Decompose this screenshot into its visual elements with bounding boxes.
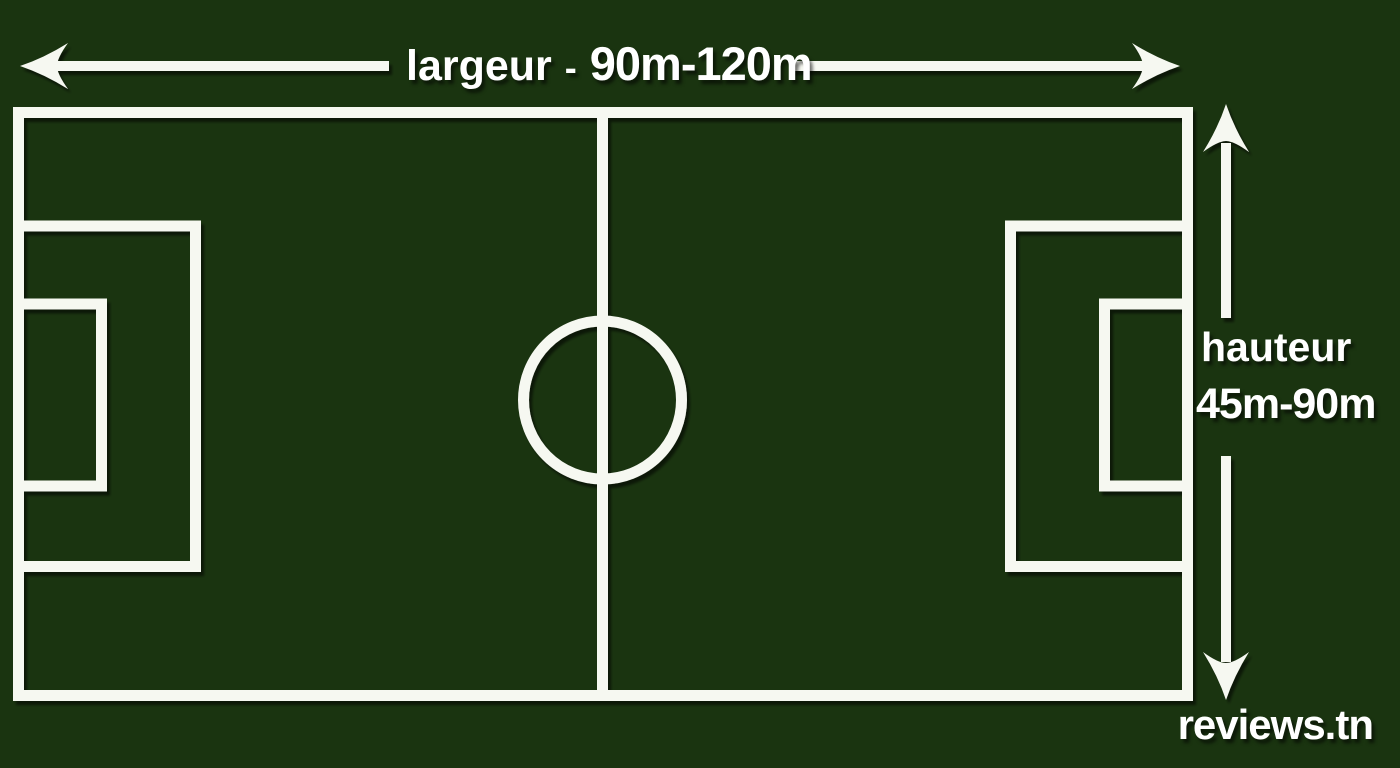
height-range-text: 45m-90m xyxy=(1196,383,1375,426)
watermark: reviews.tn xyxy=(1178,704,1373,746)
right-goal-area xyxy=(1105,304,1188,486)
width-label-text: largeur xyxy=(406,45,552,88)
diagram-canvas: largeur - 90m-120m hauteur 45m-90m revie… xyxy=(0,0,1400,768)
left-goal-area xyxy=(19,304,102,486)
width-dimension-label: largeur - 90m-120m xyxy=(406,40,812,88)
width-label-separator: - xyxy=(565,50,577,86)
height-dimension-label: hauteur 45m-90m xyxy=(1201,327,1375,426)
width-range-text: 90m-120m xyxy=(590,40,812,87)
height-label-text: hauteur xyxy=(1201,327,1351,368)
football-pitch-diagram xyxy=(0,0,1400,768)
